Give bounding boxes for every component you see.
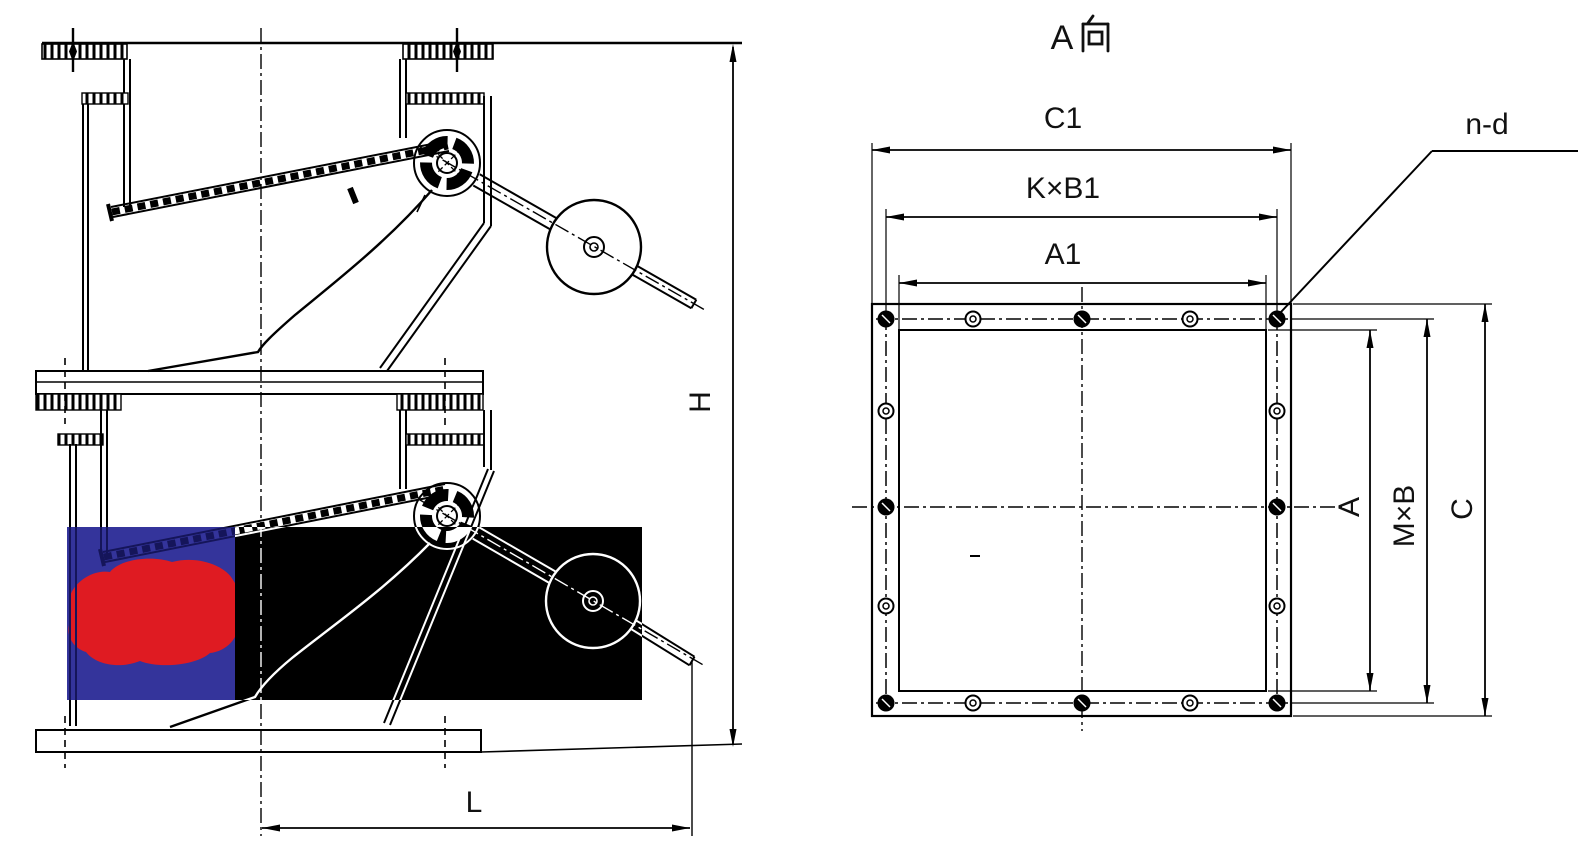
bottom-flange — [36, 716, 742, 768]
flange-face-view — [852, 143, 1578, 731]
dim-label-a1: A1 — [1045, 238, 1082, 271]
nd-leader-line — [1281, 151, 1578, 312]
damper-technical-drawing: H L — [0, 0, 1596, 858]
top-flange-right — [403, 28, 493, 72]
linkage-cable-upper — [148, 190, 432, 371]
lower-mechanism — [70, 28, 705, 836]
black-redaction-rect — [235, 527, 642, 700]
lower-duct-walls — [58, 410, 491, 489]
left-view-dimensions — [262, 44, 737, 832]
top-flange-left — [42, 28, 127, 72]
dim-label-c: C — [1446, 498, 1479, 520]
upper-duct-walls — [82, 59, 491, 371]
damper-blade-upper — [108, 141, 449, 221]
dim-label-h: H — [684, 391, 717, 413]
red-blob — [68, 559, 240, 666]
view-direction-label: A — [1051, 16, 1108, 57]
redaction-overlay — [67, 28, 705, 836]
dim-label-a: A — [1333, 497, 1366, 517]
dim-label-l: L — [466, 786, 483, 819]
dim-label-mxb: M×B — [1388, 485, 1421, 548]
dim-label-c1: C1 — [1044, 102, 1082, 135]
view-label-a: A — [1051, 19, 1074, 57]
dim-label-nd: n-d — [1465, 108, 1508, 141]
dim-label-kxb1: K×B1 — [1026, 172, 1100, 205]
middle-flange — [36, 358, 483, 430]
left-section-view — [36, 28, 742, 836]
xiang-cjk-glyph — [1083, 16, 1108, 51]
